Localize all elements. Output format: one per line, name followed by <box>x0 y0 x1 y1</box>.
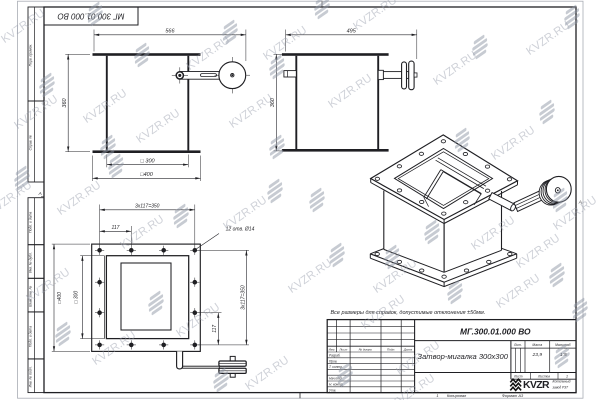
svg-text:Утв.: Утв. <box>329 388 336 392</box>
svg-text:1: 1 <box>566 375 568 379</box>
svg-text:Все размеры для справок, допус: Все размеры для справок, допустимые откл… <box>331 310 486 316</box>
svg-text:□ 300: □ 300 <box>74 291 80 304</box>
svg-text:Перв. примен.: Перв. примен. <box>29 44 33 67</box>
svg-text:Подп. и дата: Подп. и дата <box>29 326 33 347</box>
svg-text:117: 117 <box>111 225 119 231</box>
svg-text:МГ.300.01.000 ВО: МГ.300.01.000 ВО <box>460 326 531 336</box>
svg-text:117: 117 <box>212 325 218 333</box>
svg-text:Инв. № дубл.: Инв. № дубл. <box>29 252 33 273</box>
svg-text:KVZR: KVZR <box>523 380 550 391</box>
svg-text:Подп.: Подп. <box>387 348 395 352</box>
svg-text:Масса: Масса <box>532 343 542 347</box>
svg-text:Инв. № подл.: Инв. № подл. <box>29 366 33 387</box>
svg-text:А: А <box>38 191 42 196</box>
svg-text:360: 360 <box>62 97 68 107</box>
svg-text:□ 300: □ 300 <box>141 159 156 165</box>
svg-text:Формат А3: Формат А3 <box>502 393 524 398</box>
svg-text:№ докум.: № докум. <box>359 348 373 352</box>
svg-text:Справ. №: Справ. № <box>29 135 33 151</box>
svg-text:Лист: Лист <box>338 348 347 352</box>
svg-text:Пров.: Пров. <box>329 359 338 363</box>
svg-text:Копировал: Копировал <box>447 393 467 398</box>
svg-text:завод РЗТ: завод РЗТ <box>552 385 570 389</box>
svg-text:23,9: 23,9 <box>532 352 543 358</box>
svg-text:566: 566 <box>165 29 175 35</box>
svg-text:Листов: Листов <box>537 375 550 379</box>
svg-text:Подп. и дата: Подп. и дата <box>29 212 33 233</box>
svg-text:Лит.: Лит. <box>513 343 522 347</box>
svg-text:Разраб.: Разраб. <box>329 354 341 358</box>
svg-text:□400: □400 <box>140 172 153 178</box>
svg-text:Котельный: Котельный <box>553 380 571 384</box>
svg-text:3x117=350: 3x117=350 <box>135 204 160 210</box>
svg-text:1: 1 <box>436 393 438 398</box>
svg-text:3x117=350: 3x117=350 <box>240 285 246 310</box>
svg-text:Изм.: Изм. <box>329 348 336 352</box>
svg-text:□400: □400 <box>57 292 63 304</box>
svg-text:Дата: Дата <box>403 348 412 352</box>
svg-text:Лист: Лист <box>513 375 523 379</box>
